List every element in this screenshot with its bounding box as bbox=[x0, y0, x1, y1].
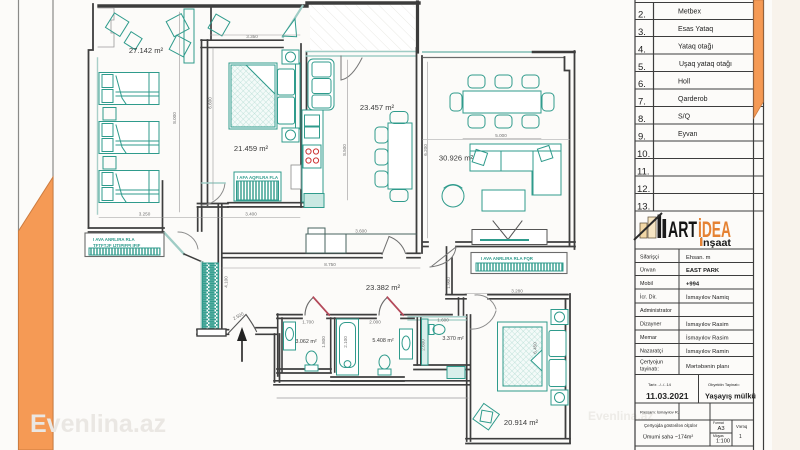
svg-text:5.: 5. bbox=[638, 62, 646, 73]
svg-text:3.: 3. bbox=[638, 27, 646, 38]
svg-text:Rəssam: İsmayılov R.: Rəssam: İsmayılov R. bbox=[640, 410, 679, 415]
svg-text:Sifarişçi: Sifarişçi bbox=[640, 255, 659, 261]
svg-text:Holl: Holl bbox=[678, 79, 691, 86]
svg-text:Vərəq: Vərəq bbox=[736, 424, 748, 429]
svg-text:S/Q: S/Q bbox=[678, 114, 691, 121]
svg-text:2.000: 2.000 bbox=[369, 320, 381, 325]
svg-text:20.914 m²: 20.914 m² bbox=[504, 418, 539, 427]
svg-text:3.250: 3.250 bbox=[139, 212, 151, 217]
svg-text:Format: Format bbox=[713, 421, 724, 425]
svg-text:Nazaratçi: Nazaratçi bbox=[640, 349, 663, 355]
svg-text:21.459 m²: 21.459 m² bbox=[234, 144, 269, 153]
svg-text:3.600: 3.600 bbox=[355, 229, 367, 234]
svg-text:İsmayılov Rasim: İsmayılov Rasim bbox=[686, 321, 729, 328]
svg-text:Eyvan: Eyvan bbox=[678, 131, 698, 138]
svg-text:Metbex: Metbex bbox=[678, 9, 701, 16]
svg-text:11.03.2021: 11.03.2021 bbox=[646, 391, 689, 401]
svg-text:1.700: 1.700 bbox=[302, 320, 314, 325]
svg-text:Yataq otağı: Yataq otağı bbox=[678, 44, 713, 51]
svg-text:11.: 11. bbox=[637, 167, 650, 178]
svg-text:İsmayılov Rasim: İsmayılov Rasim bbox=[686, 335, 729, 342]
svg-text:Evenlina.az: Evenlina.az bbox=[30, 410, 166, 438]
svg-text:tayinatı:: tayinatı: bbox=[640, 367, 659, 373]
svg-text:3.280: 3.280 bbox=[511, 289, 523, 294]
svg-text:8.500: 8.500 bbox=[342, 144, 347, 156]
svg-text:8.: 8. bbox=[638, 114, 646, 125]
svg-text:Qarderob: Qarderob bbox=[678, 96, 708, 103]
svg-text:5.000: 5.000 bbox=[495, 133, 507, 138]
svg-text:3.400: 3.400 bbox=[245, 212, 257, 217]
svg-text:4.100: 4.100 bbox=[224, 276, 229, 288]
svg-text:13.: 13. bbox=[637, 202, 650, 213]
svg-text:Çertyojda göstərilən ölçülər: Çertyojda göstərilən ölçülər bbox=[644, 423, 698, 428]
svg-text:23.457 m²: 23.457 m² bbox=[360, 103, 395, 112]
svg-text:1.900: 1.900 bbox=[446, 277, 451, 289]
svg-text:Obyektin Tayinatı:: Obyektin Tayinatı: bbox=[708, 382, 740, 387]
svg-text:Administrator: Administrator bbox=[640, 308, 672, 314]
svg-text:ART: ART bbox=[668, 217, 697, 242]
svg-text:Çertyojun: Çertyojun bbox=[640, 360, 663, 366]
svg-text:Yaşayış mülkü: Yaşayış mülkü bbox=[705, 392, 756, 401]
svg-text:Uşaq yataq otağı: Uşaq yataq otağı bbox=[679, 61, 732, 68]
svg-text:27.142 m²: 27.142 m² bbox=[129, 46, 164, 55]
svg-text:1.800: 1.800 bbox=[321, 336, 326, 348]
svg-text:Esas Yataq: Esas Yataq bbox=[678, 26, 713, 33]
svg-text:7.: 7. bbox=[638, 97, 646, 108]
svg-text:2.: 2. bbox=[638, 10, 646, 21]
svg-text:Tarix ../../..14: Tarix ../../..14 bbox=[648, 382, 672, 387]
svg-text:4.: 4. bbox=[638, 45, 646, 56]
svg-text:9.: 9. bbox=[638, 132, 646, 143]
svg-text:2.600: 2.600 bbox=[421, 339, 426, 351]
svg-text:6.600: 6.600 bbox=[208, 97, 213, 109]
svg-text:6.450: 6.450 bbox=[533, 342, 538, 354]
svg-text:12.: 12. bbox=[637, 184, 650, 195]
svg-text:I AVA ANRLIRA RLA: I AVA ANRLIRA RLA bbox=[93, 237, 135, 242]
svg-text:Ümumi sahə ~174m²: Ümumi sahə ~174m² bbox=[643, 434, 693, 441]
svg-text:İsmayılov Ramin: İsmayılov Ramin bbox=[686, 348, 729, 355]
svg-text:A3: A3 bbox=[718, 426, 725, 432]
svg-text:İnşaat: İnşaat bbox=[700, 236, 732, 249]
svg-text:I AFA AQFILRA FLA: I AFA AQFILRA FLA bbox=[237, 175, 279, 180]
svg-text:Ehsan. m: Ehsan. m bbox=[686, 255, 711, 261]
svg-text:Mərtəbənin planı: Mərtəbənin planı bbox=[686, 364, 730, 370]
svg-text:İcr. Dir.: İcr. Dir. bbox=[640, 294, 657, 301]
svg-text:I AVA ANRLIRA RLA FQR: I AVA ANRLIRA RLA FQR bbox=[481, 256, 534, 261]
svg-text:8.750: 8.750 bbox=[324, 262, 336, 267]
svg-text:Mobil: Mobil bbox=[640, 281, 653, 287]
svg-text:+994: +994 bbox=[686, 282, 700, 288]
svg-text:Ünvan: Ünvan bbox=[640, 267, 656, 274]
svg-text:1.600: 1.600 bbox=[437, 318, 449, 323]
svg-text:3.062 m²: 3.062 m² bbox=[295, 339, 316, 345]
svg-text:10.: 10. bbox=[637, 149, 650, 160]
svg-text:1:100: 1:100 bbox=[716, 439, 730, 445]
svg-text:2.100: 2.100 bbox=[343, 336, 348, 348]
svg-text:İsmayılov Namiq: İsmayılov Namiq bbox=[686, 294, 729, 301]
svg-text:6.: 6. bbox=[638, 79, 646, 90]
svg-text:30.926 m²: 30.926 m² bbox=[439, 154, 474, 163]
svg-text:Dizayner: Dizayner bbox=[640, 322, 661, 328]
svg-text:23.382 m²: 23.382 m² bbox=[366, 283, 401, 292]
svg-text:Miqyas: Miqyas bbox=[713, 434, 724, 438]
svg-text:3.370 m²: 3.370 m² bbox=[442, 336, 463, 342]
svg-text:TFTFTJF IJTIPIFPI IFIF: TFTFTJF IJTIPIFPI IFIF bbox=[93, 243, 141, 248]
svg-text:5.408 m²: 5.408 m² bbox=[372, 338, 393, 344]
svg-text:1: 1 bbox=[739, 434, 742, 440]
svg-text:8.000: 8.000 bbox=[172, 112, 177, 124]
svg-text:EAST PARK: EAST PARK bbox=[686, 268, 720, 274]
svg-text:Memar: Memar bbox=[640, 335, 657, 341]
